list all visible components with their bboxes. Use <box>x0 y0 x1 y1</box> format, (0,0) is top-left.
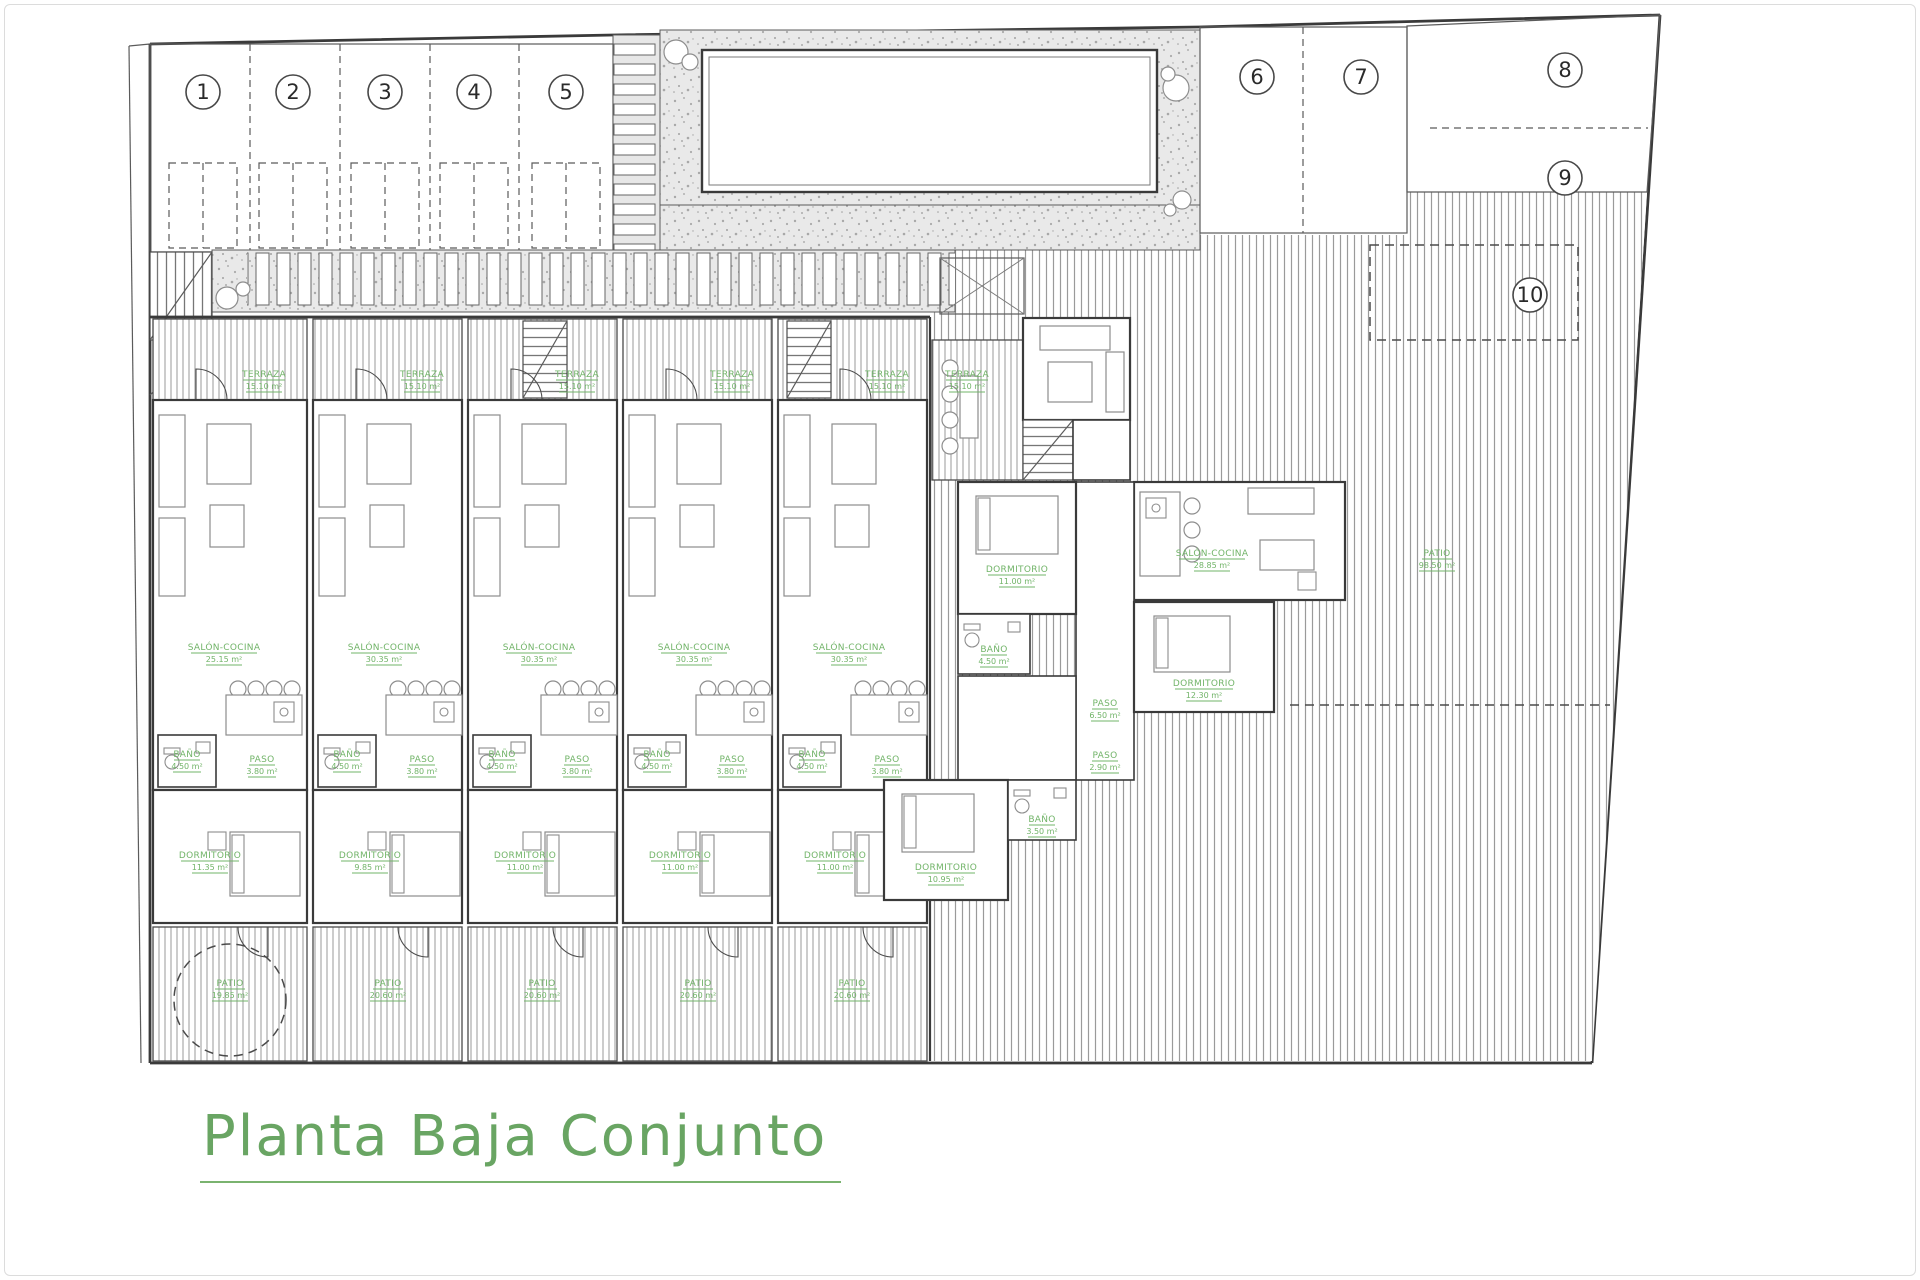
sofa <box>629 518 655 596</box>
svg-text:TERRAZA: TERRAZA <box>944 370 989 380</box>
sofa <box>319 518 345 596</box>
plot-number-badge-9: 9 <box>1548 161 1582 195</box>
svg-text:PATIO: PATIO <box>528 979 555 989</box>
svg-text:BAÑO: BAÑO <box>488 749 515 760</box>
plot-number-badge-5: 5 <box>549 75 583 109</box>
svg-text:3.80 m²: 3.80 m² <box>561 767 592 776</box>
kitchen-island <box>386 695 462 735</box>
bed <box>545 832 615 896</box>
boardwalk <box>613 35 660 250</box>
svg-text:SALÓN-COCINA: SALÓN-COCINA <box>348 641 421 653</box>
svg-text:6.50 m²: 6.50 m² <box>1089 711 1120 720</box>
svg-text:DORMITORIO: DORMITORIO <box>339 851 401 861</box>
plot-number-3: 3 <box>378 80 391 104</box>
svg-text:SALÓN-COCINA: SALÓN-COCINA <box>503 641 576 653</box>
svg-text:4.50 m²: 4.50 m² <box>796 762 827 771</box>
sofa <box>1248 488 1314 514</box>
svg-text:TERRAZA: TERRAZA <box>554 370 599 380</box>
plot-number-5: 5 <box>559 80 572 104</box>
svg-text:DORMITORIO: DORMITORIO <box>494 851 556 861</box>
svg-text:20.60 m²: 20.60 m² <box>834 991 870 1000</box>
svg-text:TERRAZA: TERRAZA <box>864 370 909 380</box>
townhouse-unit-4: TERRAZA 15.10 m² SALÓN-COCINA 30.35 m² B… <box>623 319 772 1061</box>
svg-text:3.80 m²: 3.80 m² <box>246 767 277 776</box>
plot-number-10: 10 <box>1517 283 1544 307</box>
svg-text:3.80 m²: 3.80 m² <box>716 767 747 776</box>
svg-text:SALÓN-COCINA: SALÓN-COCINA <box>658 641 731 653</box>
svg-text:3.80 m²: 3.80 m² <box>871 767 902 776</box>
plot-number-6: 6 <box>1250 65 1263 89</box>
svg-text:20.60 m²: 20.60 m² <box>370 991 406 1000</box>
chair <box>942 412 958 428</box>
coffee-table <box>525 505 559 547</box>
svg-text:15.10 m²: 15.10 m² <box>404 382 440 391</box>
svg-text:20.60 m²: 20.60 m² <box>680 991 716 1000</box>
svg-text:TERRAZA: TERRAZA <box>399 370 444 380</box>
svg-text:DORMITORIO: DORMITORIO <box>1173 679 1235 689</box>
sofa <box>1106 352 1124 412</box>
svg-text:4.50 m²: 4.50 m² <box>331 762 362 771</box>
pool-deck <box>660 30 1200 250</box>
plot-number-8: 8 <box>1558 58 1571 82</box>
plot-number-9: 9 <box>1558 166 1571 190</box>
svg-text:12.30 m²: 12.30 m² <box>1186 691 1222 700</box>
svg-text:PATIO: PATIO <box>216 979 243 989</box>
sofa <box>629 415 655 507</box>
pergola-tree <box>216 287 238 309</box>
svg-text:28.85 m²: 28.85 m² <box>1194 561 1230 570</box>
svg-text:DORMITORIO: DORMITORIO <box>179 851 241 861</box>
svg-text:4.50 m²: 4.50 m² <box>171 762 202 771</box>
svg-text:10.95 m²: 10.95 m² <box>928 875 964 884</box>
svg-text:4.50 m²: 4.50 m² <box>978 657 1009 666</box>
sofa <box>784 518 810 596</box>
svg-text:PASO: PASO <box>1092 751 1117 761</box>
armchair <box>522 424 566 484</box>
townhouse-unit-1: TERRAZA 15.10 m² SALÓN-COCINA 25.15 m² B… <box>153 319 307 1061</box>
plot-number-badge-6: 6 <box>1240 60 1274 94</box>
coffee-table <box>370 505 404 547</box>
svg-text:PASO: PASO <box>409 755 434 765</box>
plot-number-badge-7: 7 <box>1344 60 1378 94</box>
villa-hall <box>1073 420 1130 480</box>
svg-text:15.10 m²: 15.10 m² <box>246 382 282 391</box>
stool <box>1184 522 1200 538</box>
svg-text:DORMITORIO: DORMITORIO <box>649 851 711 861</box>
sofa <box>319 415 345 507</box>
svg-text:30.35 m²: 30.35 m² <box>831 655 867 664</box>
swimming-pool <box>702 50 1157 192</box>
svg-text:11.00 m²: 11.00 m² <box>507 863 543 872</box>
svg-text:PATIO: PATIO <box>1423 549 1450 559</box>
sofa <box>1260 540 1314 570</box>
svg-text:4.50 m²: 4.50 m² <box>486 762 517 771</box>
plot-number-badge-3: 3 <box>368 75 402 109</box>
svg-text:3.50 m²: 3.50 m² <box>1026 827 1057 836</box>
bathroom-5 <box>783 735 841 787</box>
svg-text:SALÓN-COCINA: SALÓN-COCINA <box>813 641 886 653</box>
svg-text:15.10 m²: 15.10 m² <box>559 382 595 391</box>
svg-text:3.80 m²: 3.80 m² <box>406 767 437 776</box>
svg-text:4.50 m²: 4.50 m² <box>641 762 672 771</box>
kitchen-island <box>226 695 302 735</box>
drawing-title: Planta Baja Conjunto <box>200 1104 841 1183</box>
svg-text:PASO: PASO <box>1092 699 1117 709</box>
svg-text:PASO: PASO <box>564 755 589 765</box>
floor-plan-drawing: 1 2 3 4 5 6 7 8 9 10 <box>0 0 1920 1280</box>
bed <box>700 832 770 896</box>
stool <box>1184 498 1200 514</box>
sofa <box>474 518 500 596</box>
parking-plots-1-5: 1 2 3 4 5 <box>150 44 613 252</box>
bed <box>390 832 460 896</box>
svg-text:PATIO: PATIO <box>838 979 865 989</box>
svg-text:DORMITORIO: DORMITORIO <box>986 565 1048 575</box>
svg-text:TERRAZA: TERRAZA <box>709 370 754 380</box>
kitchen-island <box>851 695 927 735</box>
svg-text:30.35 m²: 30.35 m² <box>521 655 557 664</box>
chair <box>942 438 958 454</box>
svg-text:98.50 m²: 98.50 m² <box>1419 561 1455 570</box>
svg-text:30.35 m²: 30.35 m² <box>676 655 712 664</box>
svg-text:BAÑO: BAÑO <box>1028 814 1055 825</box>
svg-text:TERRAZA: TERRAZA <box>241 370 286 380</box>
pergola-walkway <box>212 250 955 312</box>
plot-number-badge-1: 1 <box>186 75 220 109</box>
villa-corridor <box>1076 482 1134 780</box>
armchair <box>207 424 251 484</box>
svg-text:DORMITORIO: DORMITORIO <box>915 863 977 873</box>
svg-text:BAÑO: BAÑO <box>173 749 200 760</box>
townhouse-unit-3: TERRAZA 15.10 m² SALÓN-COCINA 30.35 m² B… <box>468 319 617 1061</box>
bathroom-2 <box>318 735 376 787</box>
plot-number-4: 4 <box>467 80 480 104</box>
svg-text:15.10 m²: 15.10 m² <box>869 382 905 391</box>
svg-text:PASO: PASO <box>249 755 274 765</box>
kitchen-island <box>541 695 617 735</box>
bed <box>976 496 1058 554</box>
plot-number-7: 7 <box>1354 65 1367 89</box>
bed <box>1154 616 1230 672</box>
svg-text:11.00 m²: 11.00 m² <box>999 577 1035 586</box>
svg-text:BAÑO: BAÑO <box>643 749 670 760</box>
coffee-table <box>835 505 869 547</box>
sofa <box>159 415 185 507</box>
svg-text:25.15 m²: 25.15 m² <box>206 655 242 664</box>
terraza-1 <box>153 319 307 400</box>
svg-text:PATIO: PATIO <box>374 979 401 989</box>
svg-text:15.10 m²: 15.10 m² <box>714 382 750 391</box>
plot-number-2: 2 <box>286 80 299 104</box>
plot-number-1: 1 <box>196 80 209 104</box>
townhouse-unit-5: TERRAZA 15.10 m² SALÓN-COCINA 30.35 m² B… <box>778 319 927 1061</box>
svg-text:11.35 m²: 11.35 m² <box>192 863 228 872</box>
svg-text:BAÑO: BAÑO <box>333 749 360 760</box>
svg-text:19.85 m²: 19.85 m² <box>212 991 248 1000</box>
bed <box>902 794 974 852</box>
coffee-table <box>210 505 244 547</box>
drawing-title-text: Planta Baja Conjunto <box>200 1104 841 1183</box>
plot-number-badge-4: 4 <box>457 75 491 109</box>
svg-text:20.60 m²: 20.60 m² <box>524 991 560 1000</box>
svg-text:11.00 m²: 11.00 m² <box>817 863 853 872</box>
sofa <box>474 415 500 507</box>
svg-text:30.35 m²: 30.35 m² <box>366 655 402 664</box>
svg-text:11.00 m²: 11.00 m² <box>662 863 698 872</box>
svg-text:PATIO: PATIO <box>684 979 711 989</box>
svg-text:PASO: PASO <box>874 755 899 765</box>
armchair <box>367 424 411 484</box>
svg-text:SALÓN-COCINA: SALÓN-COCINA <box>188 641 261 653</box>
svg-text:DORMITORIO: DORMITORIO <box>804 851 866 861</box>
bathroom-3 <box>473 735 531 787</box>
sofa <box>159 518 185 596</box>
svg-text:PASO: PASO <box>719 755 744 765</box>
plot-number-badge-2: 2 <box>276 75 310 109</box>
villa-dressing <box>958 676 1076 780</box>
svg-text:2.90 m²: 2.90 m² <box>1089 763 1120 772</box>
pergola-tree <box>236 282 250 296</box>
svg-text:15.10 m²: 15.10 m² <box>949 382 985 391</box>
sofa <box>784 415 810 507</box>
svg-text:BAÑO: BAÑO <box>980 644 1007 655</box>
sofa <box>1040 326 1110 350</box>
bed <box>230 832 300 896</box>
armchair <box>677 424 721 484</box>
svg-text:SALÓN-COCINA: SALÓN-COCINA <box>1176 547 1249 559</box>
svg-text:9.85 m²: 9.85 m² <box>354 863 385 872</box>
parking-bay <box>169 163 600 248</box>
kitchen-island <box>696 695 772 735</box>
plot-number-badge-8: 8 <box>1548 53 1582 87</box>
armchair <box>832 424 876 484</box>
coffee-table <box>680 505 714 547</box>
bathroom-1 <box>158 735 216 787</box>
townhouse-unit-2: TERRAZA 15.10 m² SALÓN-COCINA 30.35 m² B… <box>313 319 462 1061</box>
bathroom-4 <box>628 735 686 787</box>
svg-text:BAÑO: BAÑO <box>798 749 825 760</box>
coffee-table <box>1048 362 1092 402</box>
